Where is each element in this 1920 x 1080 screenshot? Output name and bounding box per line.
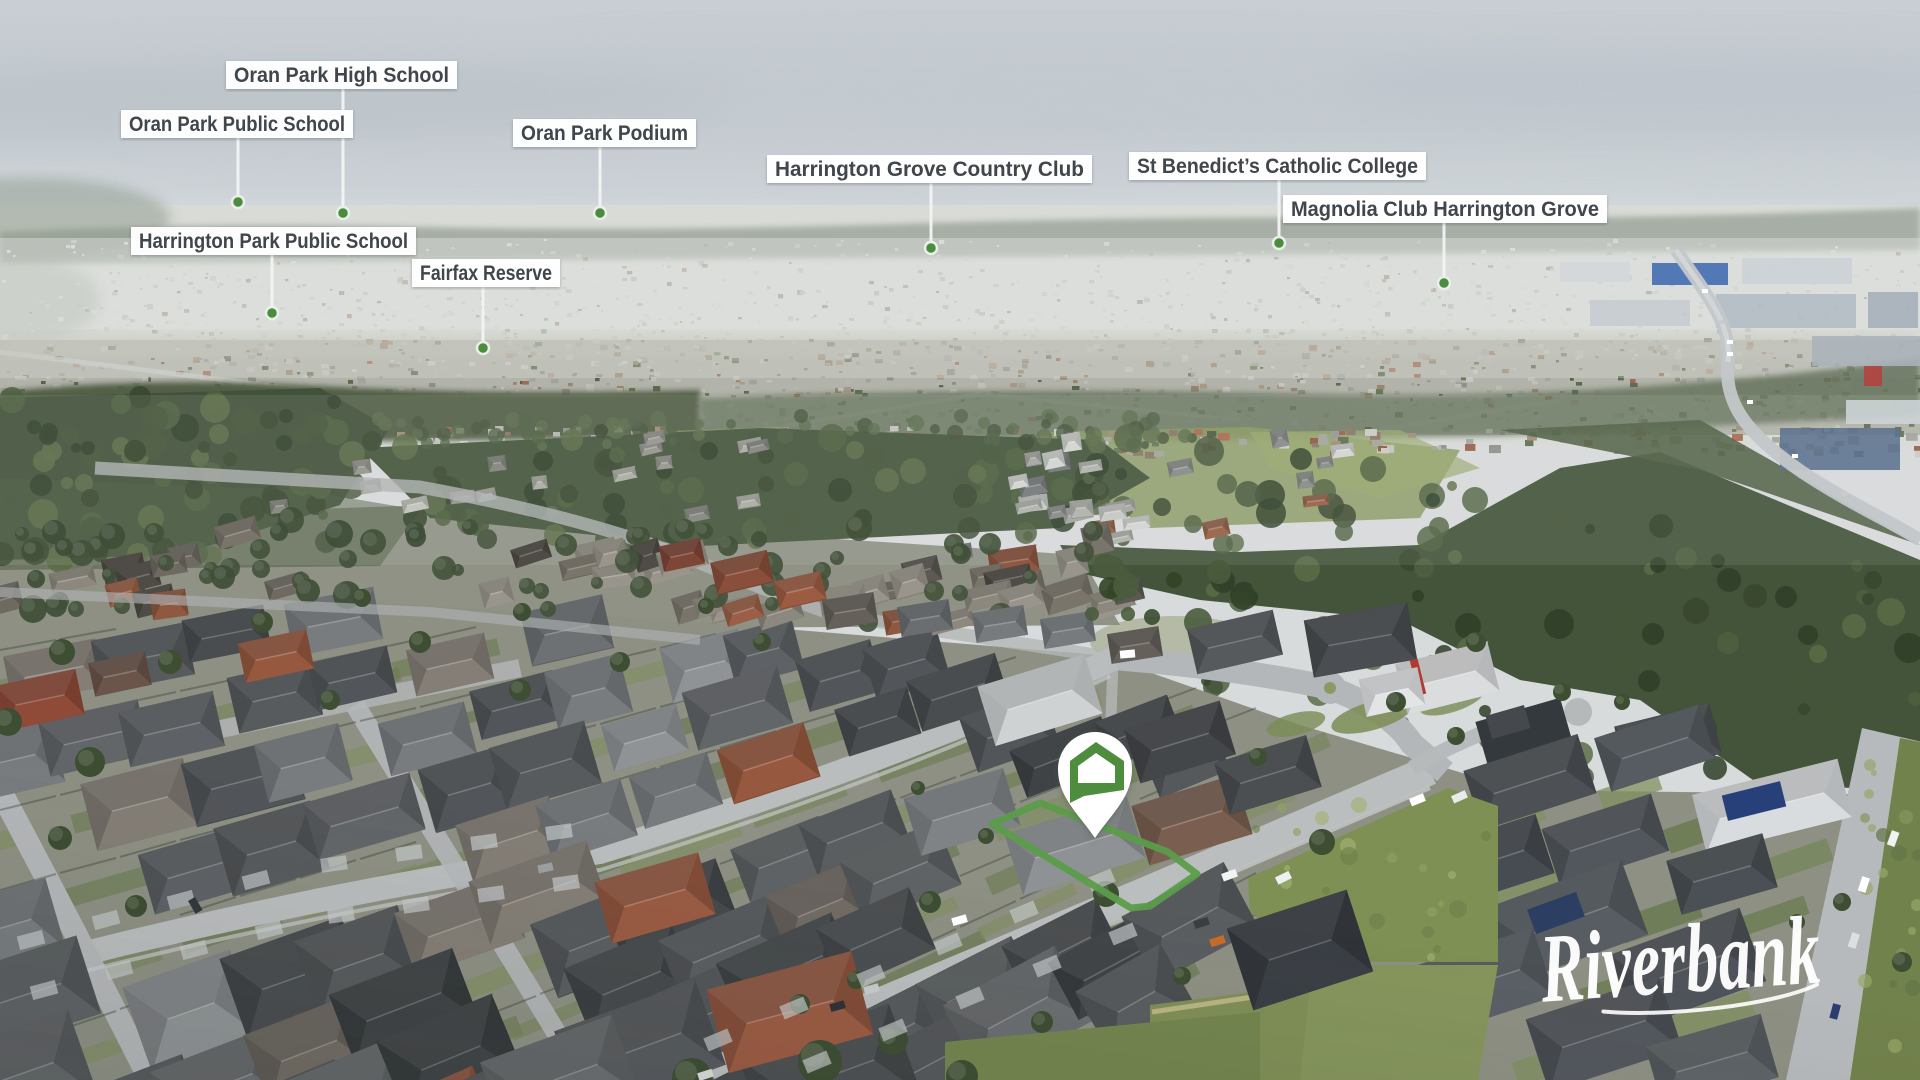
svg-text:Oran Park Public School: Oran Park Public School — [129, 113, 345, 136]
svg-text:Fairfax Reserve: Fairfax Reserve — [420, 262, 552, 285]
svg-text:St Benedict’s Catholic College: St Benedict’s Catholic College — [1137, 155, 1418, 178]
svg-text:Magnolia Club Harrington Grove: Magnolia Club Harrington Grove — [1291, 198, 1599, 221]
svg-text:Oran Park Podium: Oran Park Podium — [521, 122, 688, 145]
svg-text:Riverbank: Riverbank — [1536, 896, 1824, 1023]
svg-text:Harrington Park Public School: Harrington Park Public School — [139, 230, 408, 253]
svg-text:Oran Park High School: Oran Park High School — [234, 64, 449, 87]
svg-text:Harrington Grove Country Club: Harrington Grove Country Club — [775, 158, 1084, 181]
